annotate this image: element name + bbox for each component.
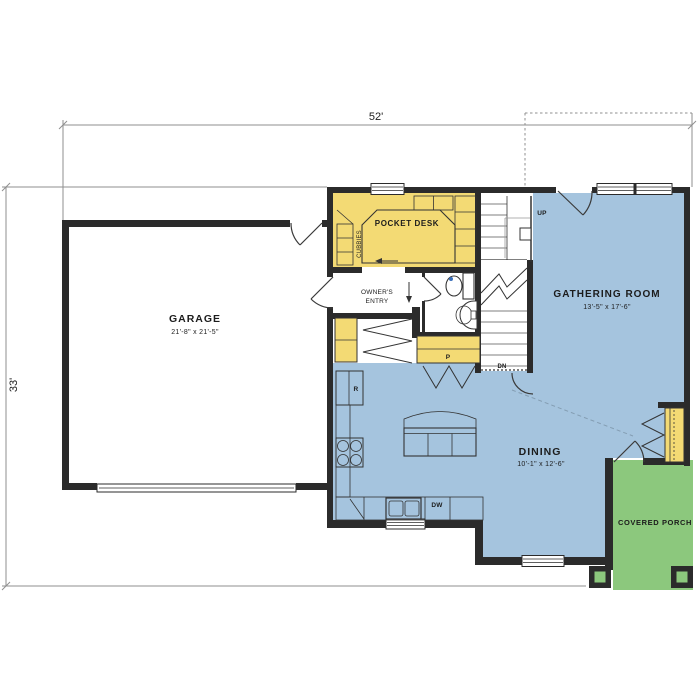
- pocket-desk-window: [371, 184, 404, 195]
- entry-arrow: [406, 282, 412, 303]
- hall-floor: [481, 371, 533, 379]
- garage-size: 21'-8" x 21'-5": [171, 329, 219, 336]
- garage-door: [97, 484, 296, 492]
- owners-entry-label-line2: ENTRY: [366, 298, 389, 305]
- refrigerator-label: R: [354, 386, 359, 393]
- pocket-desk-label: POCKET DESK: [375, 219, 439, 228]
- floor-plan-page: 52' 33': [0, 0, 700, 700]
- dining-size: 10'-1" x 12'-6": [517, 461, 565, 468]
- cubbies-label: CUBBIES: [357, 230, 363, 258]
- dining-label: DINING: [519, 446, 562, 458]
- garage-service-door: [291, 223, 322, 245]
- toilet: [446, 273, 474, 299]
- dining-window: [522, 556, 564, 567]
- stairs-up-label: UP: [537, 210, 547, 217]
- covered-porch-label: COVERED PORCH: [618, 518, 692, 527]
- newel-post: [520, 228, 531, 240]
- kitchen-sink-window: [386, 519, 425, 529]
- powder-room-fixtures: [446, 273, 477, 329]
- pantry-label: P: [446, 354, 451, 361]
- owners-entry-label-line1: OWNER'S: [361, 289, 393, 296]
- mud-closet-bifold-doors: [363, 319, 412, 363]
- stairs-down-label: DN: [497, 364, 506, 370]
- dishwasher-label: DW: [431, 502, 443, 509]
- powder-room-door: [424, 277, 441, 301]
- pedestal-sink: [456, 301, 477, 329]
- gathering-room-size: 13'-5" x 17'-6": [583, 304, 631, 311]
- pocket-desk-surface: [362, 210, 455, 263]
- gathering-room-label: GATHERING ROOM: [553, 289, 660, 300]
- garage-label: GARAGE: [169, 313, 221, 325]
- floor-plan-canvas: 52' 33': [0, 0, 700, 700]
- owners-entry-door: [311, 277, 333, 308]
- width-dimension-label: 52': [369, 111, 383, 123]
- gathering-room-window: [597, 184, 672, 195]
- height-dimension-label: 33': [8, 378, 20, 392]
